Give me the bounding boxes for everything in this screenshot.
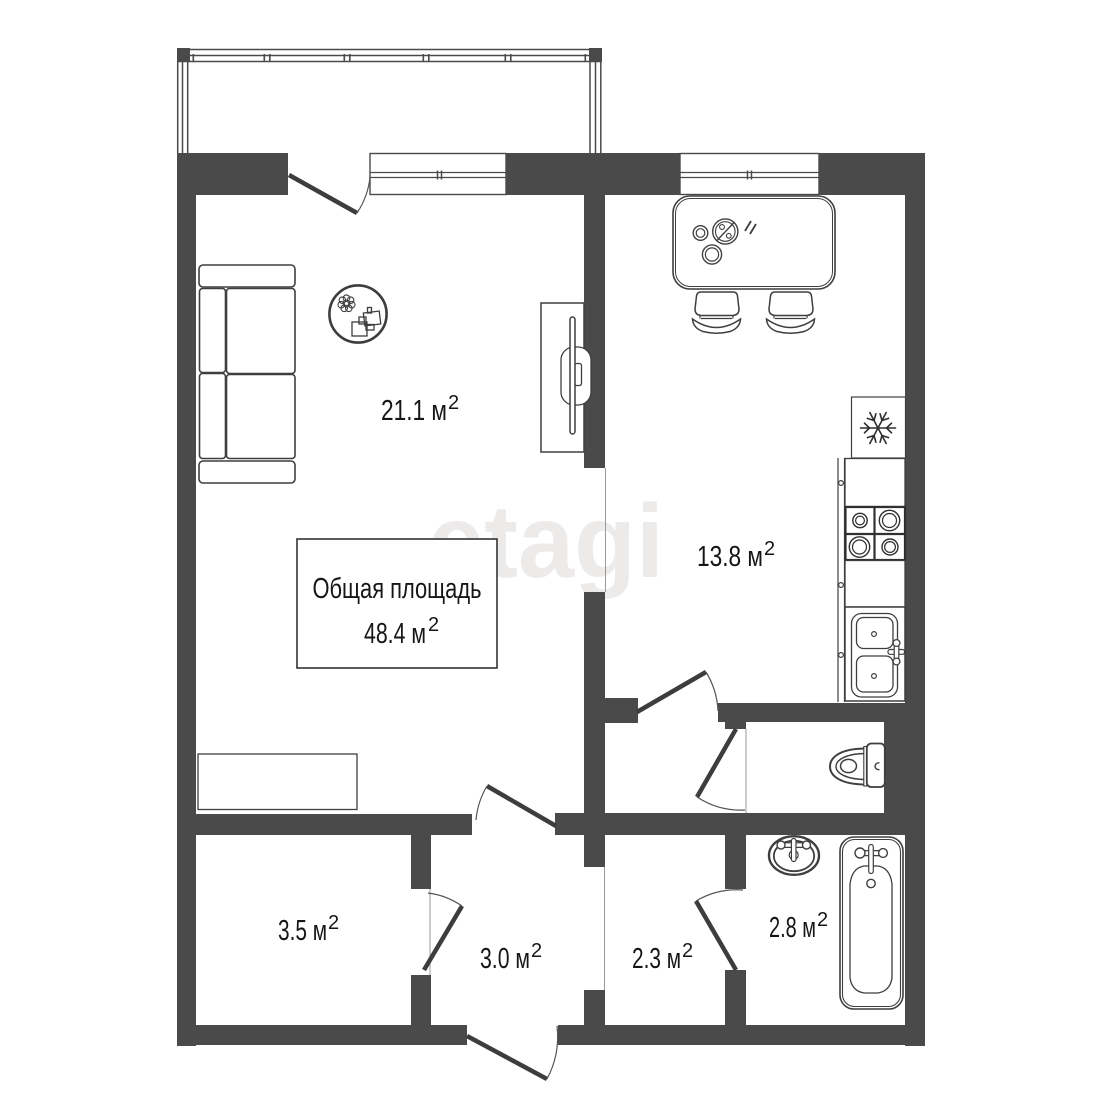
svg-text:2: 2 <box>531 940 542 962</box>
svg-text:3.0 м: 3.0 м <box>480 943 530 975</box>
svg-text:2: 2 <box>448 392 459 414</box>
svg-text:2: 2 <box>428 614 439 636</box>
svg-text:3.5 м: 3.5 м <box>278 915 327 947</box>
svg-text:2: 2 <box>328 912 339 934</box>
svg-text:21.1 м: 21.1 м <box>381 395 447 427</box>
svg-text:2: 2 <box>817 909 828 931</box>
svg-text:48.4 м: 48.4 м <box>364 618 426 650</box>
svg-text:2.8 м: 2.8 м <box>769 912 816 944</box>
svg-text:2.3 м: 2.3 м <box>632 943 681 975</box>
svg-text:2: 2 <box>764 538 775 560</box>
svg-text:13.8 м: 13.8 м <box>697 541 763 573</box>
svg-text:2: 2 <box>682 940 693 962</box>
svg-text:Общая площадь: Общая площадь <box>313 573 482 605</box>
